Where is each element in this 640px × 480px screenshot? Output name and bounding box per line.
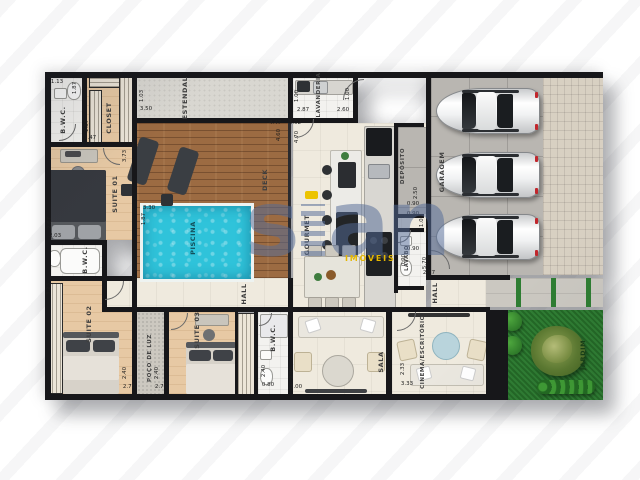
room-label-suite02: SUITE 02 [85, 305, 93, 342]
suite03-pillow [213, 350, 233, 361]
garden-hedge [537, 380, 595, 394]
room-label-deck: DECK [261, 169, 269, 191]
wall [132, 118, 358, 123]
island-plant [341, 152, 349, 160]
room-label-piscina: PISCINA [189, 221, 197, 255]
suite01-tv [65, 151, 81, 157]
cinema-armchair [396, 338, 418, 361]
wall [288, 72, 293, 118]
burner [381, 237, 388, 244]
burner [370, 237, 377, 244]
floor-plan: B.W.C. CLOSET SUITE 01 B.W.C. SUITE 02 P… [45, 72, 603, 400]
driveway-pavers [543, 76, 603, 275]
room-label-gourmet: GOURMET [303, 215, 311, 256]
wall [426, 275, 510, 280]
kitchen-sink [368, 164, 390, 179]
car-taillight [535, 156, 539, 162]
dining-chair [325, 245, 339, 257]
wall [386, 310, 392, 395]
room-label-sala: SALA [377, 351, 385, 372]
wall [394, 214, 424, 218]
room-label-suite03: SUITE 03 [193, 311, 201, 348]
wall [45, 72, 51, 400]
suite02-pillow [93, 340, 115, 352]
sala-coffee-table [322, 355, 354, 387]
wall [45, 394, 508, 400]
suite01-duvet [48, 170, 106, 222]
wall [235, 310, 238, 394]
wall [394, 123, 424, 127]
refrigerator [366, 128, 392, 156]
wall [82, 72, 87, 144]
car-windshield [462, 219, 476, 255]
room-label-bwc2: B.W.C. [81, 246, 89, 273]
island-stool [322, 190, 332, 200]
room-label-lavanderia: LAVANDERIA [316, 73, 322, 118]
car-taillight [535, 92, 539, 98]
room-label-cinema: CINEMA/ESCRITÓRIO [420, 315, 426, 389]
deck-side-table [161, 194, 173, 206]
island-stool [322, 165, 332, 175]
room-label-poco: POÇO DE LUZ [147, 334, 153, 382]
wall [45, 142, 137, 147]
room-estendal-floor [137, 78, 288, 118]
sala-armchair [294, 352, 312, 372]
hall-floor [102, 278, 290, 307]
suite02-duvet [63, 356, 119, 380]
wall [288, 118, 291, 278]
watermark-tagline: IMÓVEIS [345, 254, 396, 263]
wall [490, 310, 508, 400]
driveway-strips [486, 278, 603, 307]
suite03-chair [203, 329, 215, 341]
wall [132, 72, 137, 310]
car-taillight [535, 218, 539, 224]
washing-machine [297, 81, 310, 92]
car [436, 214, 540, 260]
room-label-closet: CLOSET [105, 102, 113, 133]
bwc1-toilet [67, 82, 81, 100]
car-windshield [462, 93, 476, 129]
room-label-deposito: DEPÓSITO [400, 148, 406, 184]
suite01-pillow [78, 225, 101, 239]
cinema-tv [408, 313, 470, 317]
cinema-rug [432, 332, 460, 360]
hall2-floor [431, 277, 486, 307]
dining-centerpiece [326, 270, 336, 280]
bwc2-bathtub [60, 248, 100, 274]
room-label-hall1: HALL [240, 283, 248, 304]
car [436, 152, 540, 198]
room-label-lavabo: LAVABO [404, 245, 410, 271]
wall [394, 123, 398, 293]
wall [288, 278, 293, 395]
wall [132, 310, 137, 394]
island-appliance [338, 162, 356, 188]
sala-tv [305, 389, 367, 393]
wall [45, 240, 107, 245]
car [436, 88, 540, 134]
suite01-pillow [52, 225, 75, 239]
swimming-pool [140, 203, 254, 282]
suite03-pillow [189, 350, 211, 361]
room-label-bwc1: B.W.C. [59, 106, 67, 133]
wall [164, 310, 169, 394]
car-windshield [462, 157, 476, 193]
bwc1-sink [54, 88, 67, 99]
room-label-bwc3: B.W.C. [269, 324, 277, 351]
wall [45, 72, 603, 78]
room-label-garagem: GARAGEM [438, 152, 446, 193]
floor-plan-canvas: B.W.C. CLOSET SUITE 01 B.W.C. SUITE 02 P… [0, 0, 640, 480]
dining-plant [314, 273, 322, 281]
island-stool [322, 215, 332, 225]
garden-tree-highlight [542, 335, 572, 363]
room-label-hall2: HALL [431, 282, 439, 303]
suite03-duvet [186, 364, 236, 394]
wall [254, 310, 258, 394]
bwc3-toilet [260, 368, 273, 385]
room-label-estendal: ESTENDAL [181, 77, 189, 120]
closet-shelves-left [89, 90, 102, 144]
room-label-suite01: SUITE 01 [111, 175, 119, 212]
wall [394, 286, 424, 290]
room-label-jardim: JARDIM [579, 340, 587, 370]
